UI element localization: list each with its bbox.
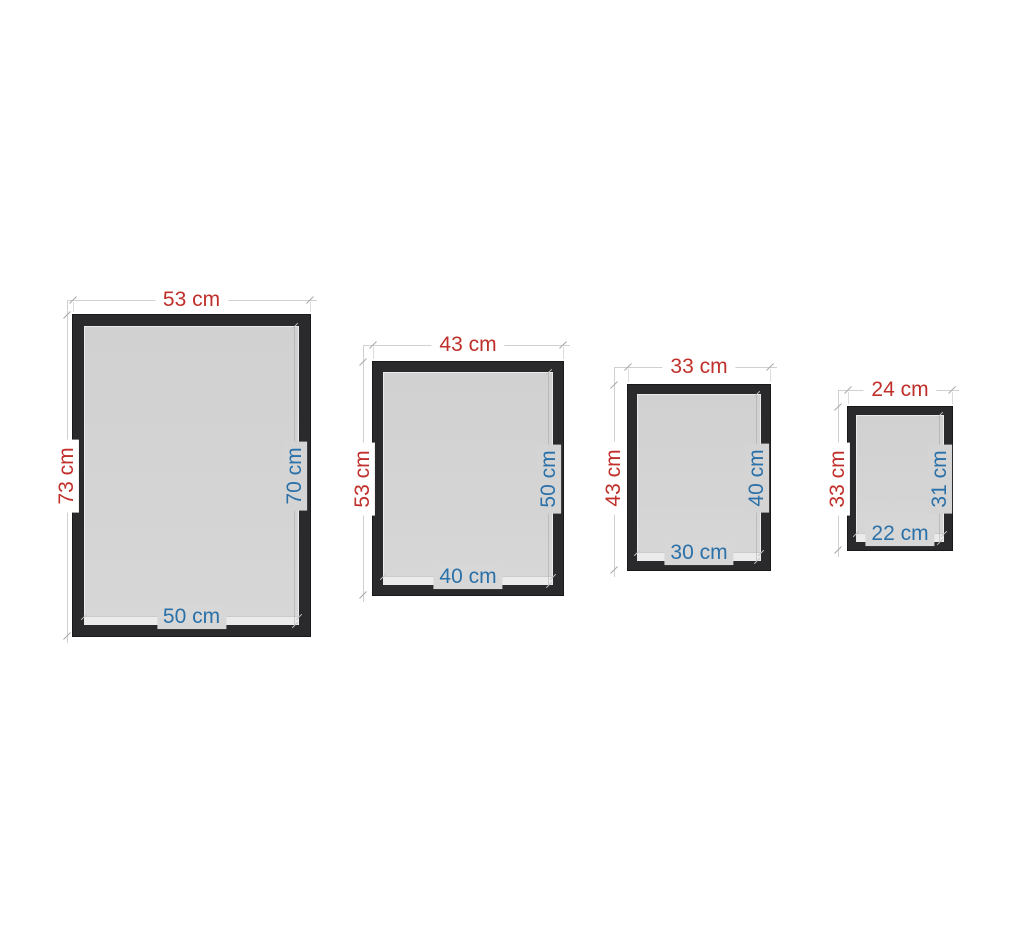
dim-extension-line <box>563 347 564 359</box>
frame-1: 53 cm 73 cm 70 cm 50 cm <box>73 315 310 636</box>
frame-2: 43 cm 53 cm 50 cm 40 cm <box>373 362 563 595</box>
frame-2-picture-frame <box>373 362 563 595</box>
dim-extension-line <box>310 302 311 312</box>
dim-extension-line <box>952 392 953 404</box>
frame-1-inner-width-label: 50 cm <box>157 605 226 629</box>
frame-3-outer-height-label: 43 cm <box>602 441 626 514</box>
dim-extension-line <box>848 392 849 404</box>
frame-4: 24 cm 33 cm 31 cm 22 cm <box>848 407 952 550</box>
dim-extension-line <box>770 369 771 382</box>
dim-extension-line <box>628 369 629 382</box>
frame-3-inner-width-label: 30 cm <box>664 541 733 565</box>
frame-1-outer-width-label: 53 cm <box>155 288 228 312</box>
frame-4-outer-height-label: 33 cm <box>826 442 850 515</box>
frame-1-outer-height-label: 73 cm <box>55 439 79 512</box>
dim-extension-line <box>373 347 374 359</box>
frame-dimensions-diagram: 53 cm 73 cm 70 cm 50 cm 43 cm 53 cm 50 c… <box>0 0 1024 937</box>
frame-3-outer-width-label: 33 cm <box>662 355 735 379</box>
frame-4-inner-height-label: 31 cm <box>928 444 952 513</box>
frame-2-outer-width-label: 43 cm <box>431 333 504 357</box>
frame-1-inner-height-label: 70 cm <box>283 441 307 510</box>
frame-2-inner-width-label: 40 cm <box>433 565 502 589</box>
frame-1-picture-frame <box>73 315 310 636</box>
frame-3-inner-height-label: 40 cm <box>745 443 769 512</box>
frame-2-inner-height-label: 50 cm <box>537 444 561 513</box>
frame-3: 33 cm 43 cm 40 cm 30 cm <box>628 385 770 570</box>
dim-extension-line <box>73 302 74 312</box>
frame-4-outer-width-label: 24 cm <box>863 378 936 402</box>
frame-4-inner-width-label: 22 cm <box>865 522 934 546</box>
frame-2-outer-height-label: 53 cm <box>351 442 375 515</box>
